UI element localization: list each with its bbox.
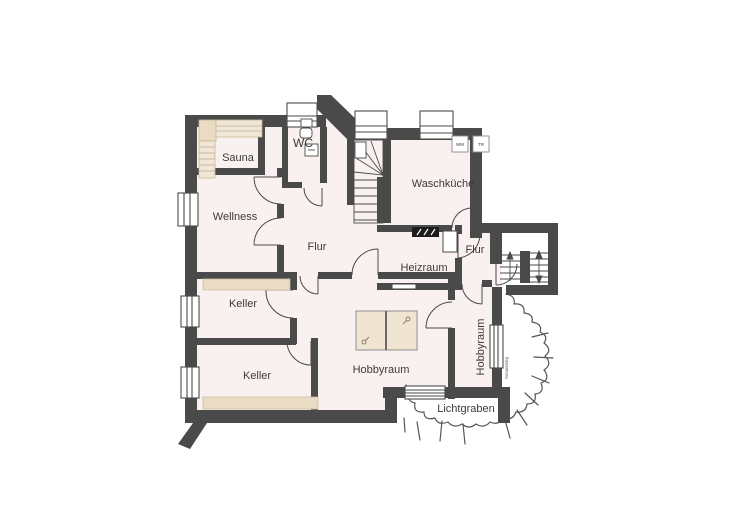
label-hobbyraum-2: Hobbyraum xyxy=(475,319,487,376)
wall-heiz-bottom xyxy=(377,283,462,290)
label-heizraum: Heizraum xyxy=(400,262,447,274)
floorplan-basement: Sauna Wellness WC Waschküche Flur Flur H… xyxy=(0,0,736,520)
wall-hobby-bottom xyxy=(383,387,510,398)
wall-bottom-stub xyxy=(178,423,207,449)
wall-keller-divider xyxy=(197,338,296,345)
wall-wasch-south-right xyxy=(472,225,492,232)
label-flur-mitte: Flur xyxy=(308,241,327,253)
shelf-keller2 xyxy=(203,397,318,409)
wall-wasch-left xyxy=(383,128,391,223)
wall-keller1-right-a xyxy=(290,272,297,290)
wall-stair-west xyxy=(347,128,354,205)
wall-heiz-right-b xyxy=(455,258,462,290)
wall-bottom xyxy=(185,410,397,423)
wall-extstair-divider xyxy=(520,251,530,283)
floorplan-page: Sauna Wellness WC Waschküche Flur Flur H… xyxy=(0,0,736,520)
wall-wc-bottom xyxy=(282,182,302,188)
window-lichtgraben xyxy=(405,386,445,399)
table-tennis-table xyxy=(356,311,417,350)
wall-wellness-keller xyxy=(197,272,297,279)
shelf-keller1 xyxy=(203,279,290,290)
ext-stair-flight-b xyxy=(530,251,548,283)
label-lichtgraben: Lichtgraben xyxy=(437,403,495,415)
label-hobbyraum-1: Hobbyraum xyxy=(353,364,410,376)
wall-hobby-east-b xyxy=(448,328,455,399)
wall-extstair-bottom xyxy=(506,285,558,295)
wall-wc-right xyxy=(320,127,327,183)
label-wellness: Wellness xyxy=(213,211,258,223)
label-keller-1: Keller xyxy=(229,298,257,310)
wall-extstair-right xyxy=(548,223,558,295)
label-wc: WC xyxy=(293,136,313,150)
wall-right-mid xyxy=(490,232,502,264)
window-wellness xyxy=(178,193,198,226)
label-sauna: Sauna xyxy=(222,152,255,164)
label-dryer: TR xyxy=(478,142,485,147)
wall-flur-south-a xyxy=(318,272,352,279)
vent-opening xyxy=(392,284,416,289)
window-keller2 xyxy=(181,367,199,398)
window-keller1 xyxy=(181,296,199,327)
wall-stair-stub xyxy=(377,177,383,223)
wall-extstair-top xyxy=(482,223,558,233)
label-washer: WM xyxy=(456,142,464,147)
window-hobby-right xyxy=(490,325,503,368)
label-waschkueche: Waschküche xyxy=(412,178,475,190)
window-waschkueche xyxy=(420,111,453,139)
wall-wellness-right-a xyxy=(277,168,284,177)
label-flur-rechts: Flur xyxy=(466,244,485,256)
wall-wellness-right-b xyxy=(277,204,284,218)
wall-rflur-south xyxy=(482,280,492,287)
label-keller-2: Keller xyxy=(243,370,271,382)
label-exit-note: Notausstieg xyxy=(504,356,509,379)
window-stairs xyxy=(355,111,387,139)
